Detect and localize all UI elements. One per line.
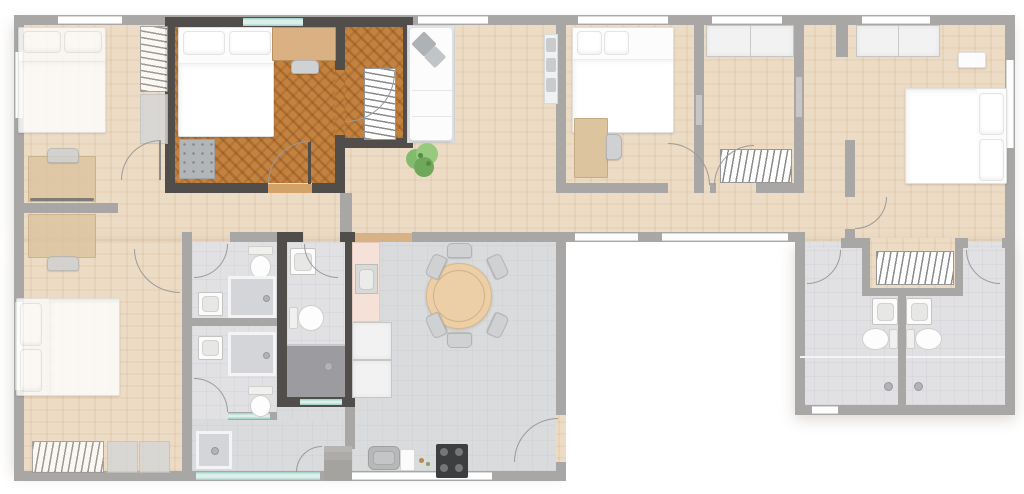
suite-window xyxy=(243,18,303,26)
plant-dot xyxy=(426,161,431,166)
window xyxy=(575,233,638,241)
double-bed xyxy=(18,27,106,133)
shower xyxy=(228,276,276,318)
toilet-bowl xyxy=(915,328,942,350)
double-bed xyxy=(16,298,120,396)
duvet xyxy=(19,61,105,132)
wardrobe-divider xyxy=(898,26,899,56)
pillow xyxy=(577,31,602,55)
cutting-board xyxy=(400,449,415,471)
chair xyxy=(606,134,622,160)
cabinet xyxy=(140,94,168,144)
shower-drain xyxy=(884,382,893,391)
suite-wall-divider-a[interactable] xyxy=(335,27,345,70)
highlighted-shower-floor[interactable] xyxy=(287,345,345,397)
sofa-seam xyxy=(412,90,452,91)
pillow xyxy=(979,93,1004,135)
toilet-tank xyxy=(889,329,898,349)
toilet-bowl xyxy=(298,305,324,331)
shower-drain xyxy=(324,362,333,371)
radiator xyxy=(32,441,104,473)
toilet xyxy=(906,328,942,350)
cabinet xyxy=(139,441,170,473)
plant xyxy=(406,143,438,177)
toilet xyxy=(248,246,273,279)
sofa xyxy=(409,27,453,141)
desk xyxy=(28,214,96,258)
refrigerator xyxy=(352,322,392,360)
kitchen-threshold xyxy=(352,233,412,242)
window xyxy=(712,16,782,24)
window xyxy=(58,16,122,24)
appliance xyxy=(546,38,556,52)
basin xyxy=(911,303,928,321)
basin xyxy=(202,340,219,356)
wall-bedroom-b-east xyxy=(182,232,192,481)
wardrobe xyxy=(706,25,794,57)
cooktop xyxy=(436,444,468,478)
wall-niche-right xyxy=(955,238,963,292)
suite-wall-bottom-a[interactable] xyxy=(165,183,268,193)
toilet-tank xyxy=(248,386,273,395)
shower-line xyxy=(800,356,898,358)
wall-kitchen-east-low xyxy=(556,462,566,481)
appliance xyxy=(546,78,556,92)
chair xyxy=(47,148,79,163)
suite-desk xyxy=(272,27,336,61)
double-bed xyxy=(905,88,1007,184)
wall-bedroom-right-stub xyxy=(836,15,848,57)
suite-bath-wall-west[interactable] xyxy=(277,232,287,407)
wall-bedroom-right-south-b xyxy=(963,238,968,248)
window xyxy=(812,406,838,414)
shower-divider-line xyxy=(287,344,345,346)
wash-basin xyxy=(198,336,223,360)
wall-right-bath-divider xyxy=(898,296,906,405)
pillow xyxy=(229,31,271,55)
basin xyxy=(877,303,894,321)
exterior-void xyxy=(566,242,795,494)
suite-toilet xyxy=(289,305,325,331)
appliance xyxy=(546,58,556,72)
wash-basin xyxy=(872,298,898,325)
pillow xyxy=(604,31,629,55)
kitchenette-strip xyxy=(544,34,558,104)
toilet-tank xyxy=(906,329,915,349)
cabinet xyxy=(107,441,138,473)
wall-bath-divider xyxy=(182,318,277,326)
shower xyxy=(228,332,276,376)
highlighted-passage-floor[interactable] xyxy=(335,70,345,138)
plant-dot xyxy=(418,153,423,158)
window xyxy=(578,16,668,24)
duvet xyxy=(906,89,977,183)
suite-desk-chair xyxy=(291,60,319,74)
dining-chair xyxy=(447,243,472,258)
glazed-entrance-door[interactable] xyxy=(196,472,320,480)
pillow xyxy=(20,349,42,392)
burner xyxy=(455,464,463,472)
pillow xyxy=(23,31,61,53)
entry-shower-mat xyxy=(196,431,232,469)
suite-door-threshold xyxy=(268,184,312,193)
basin-inner xyxy=(373,451,395,465)
bench xyxy=(958,52,986,68)
wall-kitchen-top xyxy=(412,232,556,242)
sofa-seam xyxy=(412,116,452,117)
wash-basin xyxy=(198,292,223,316)
wall-bath-top xyxy=(230,232,277,242)
shower-drain xyxy=(263,295,270,302)
sink-basin xyxy=(359,269,374,290)
chair xyxy=(47,256,79,271)
wall-niche-left xyxy=(862,238,870,292)
shower-drain xyxy=(263,352,270,359)
drain xyxy=(211,447,219,455)
toilet xyxy=(248,386,273,418)
burner xyxy=(440,464,448,472)
window xyxy=(862,16,930,24)
burner xyxy=(455,448,463,456)
table-inner-ring xyxy=(433,270,485,322)
wall-niche xyxy=(696,95,702,125)
floor-plan-canvas xyxy=(0,0,1024,494)
pillow xyxy=(20,303,42,346)
wardrobe xyxy=(856,25,940,57)
food-item xyxy=(426,462,430,466)
wash-basin xyxy=(906,298,932,325)
wall-entry-divider xyxy=(345,407,355,449)
toilet xyxy=(862,328,898,350)
desk xyxy=(574,118,608,178)
wall-bedroom-right-west-a xyxy=(845,140,855,197)
suite-double-bed xyxy=(178,27,274,137)
kitchen-sink xyxy=(355,264,378,294)
window xyxy=(352,472,492,480)
wardrobe-divider xyxy=(750,26,751,56)
window xyxy=(662,233,788,241)
wall-left-rooms-divider xyxy=(14,203,118,213)
wall-niche-bottom xyxy=(862,288,963,296)
wall-rooms-south-b xyxy=(756,183,804,193)
wall-corridor-stub xyxy=(340,193,352,232)
refrigerator xyxy=(352,360,392,398)
wall-rooms-south-a xyxy=(556,183,668,193)
duvet xyxy=(179,63,273,136)
wall-right-wing-west xyxy=(795,232,805,415)
kitchen-basin xyxy=(368,446,400,470)
toilet-bowl xyxy=(250,395,271,417)
desk-edge xyxy=(30,198,94,201)
pillow xyxy=(979,139,1004,181)
shower-drain xyxy=(914,382,923,391)
toilet-tank xyxy=(248,246,273,255)
suite-kitchenette-counter xyxy=(179,139,215,179)
wall-kitchen-east xyxy=(556,232,566,415)
food-item xyxy=(419,458,424,463)
pillow xyxy=(64,31,102,53)
suite-bath-wall-top-a[interactable] xyxy=(277,232,303,242)
radiator xyxy=(876,251,954,285)
suite-bath-wall-top-b[interactable] xyxy=(340,232,355,242)
pillow xyxy=(183,31,225,55)
wall-niche xyxy=(796,77,802,117)
window xyxy=(1006,60,1014,148)
dining-chair xyxy=(447,333,472,348)
basin xyxy=(202,296,219,312)
radiator xyxy=(140,26,168,92)
toilet-tank xyxy=(289,307,298,329)
window xyxy=(418,16,488,24)
plant-leaf xyxy=(414,157,434,177)
entrance-step xyxy=(324,446,352,481)
burner xyxy=(440,448,448,456)
suite-bath-window xyxy=(300,399,342,405)
wall-right-wing-top-pier xyxy=(841,238,845,248)
shower-line xyxy=(906,356,1005,358)
duvet xyxy=(49,299,119,395)
toilet-bowl xyxy=(862,328,889,350)
